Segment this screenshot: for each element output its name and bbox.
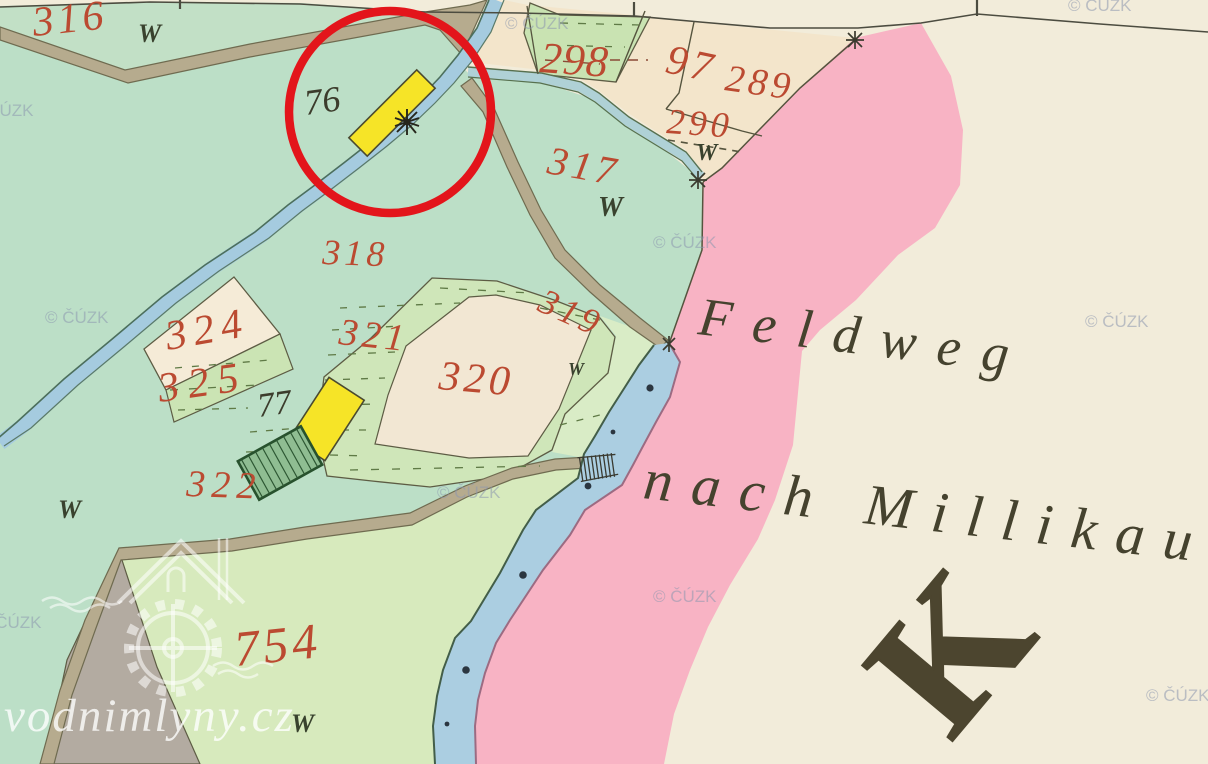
svg-text:© ČÚZK: © ČÚZK [653, 233, 717, 252]
svg-text:© ČÚZK: © ČÚZK [437, 483, 501, 502]
svg-text:© ČÚZK: © ČÚZK [0, 101, 34, 120]
svg-text:76: 76 [302, 78, 343, 123]
svg-text:W: W [568, 359, 586, 379]
svg-text:© ČÚZK: © ČÚZK [1146, 686, 1208, 705]
svg-text:© ČÚZK: © ČÚZK [0, 613, 42, 632]
svg-text:754: 754 [231, 612, 323, 677]
svg-text:320: 320 [436, 353, 516, 405]
svg-text:© ČÚZK: © ČÚZK [653, 587, 717, 606]
svg-text:© ČÚZK: © ČÚZK [505, 14, 569, 33]
svg-text:© ČÚZK: © ČÚZK [1068, 0, 1132, 15]
svg-text:W: W [598, 192, 625, 223]
svg-text:298: 298 [538, 33, 610, 87]
svg-text:318: 318 [321, 232, 389, 274]
svg-text:322: 322 [185, 463, 262, 508]
svg-text:W: W [58, 495, 83, 524]
svg-text:290: 290 [665, 101, 734, 146]
svg-text:© ČÚZK: © ČÚZK [1085, 312, 1149, 331]
svg-text:W: W [138, 19, 163, 48]
svg-text:316: 316 [29, 0, 109, 46]
svg-text:vodnimlyny.cz: vodnimlyny.cz [4, 690, 295, 742]
svg-text:321: 321 [336, 311, 410, 360]
svg-text:© ČÚZK: © ČÚZK [45, 308, 109, 327]
svg-text:W: W [696, 140, 719, 166]
